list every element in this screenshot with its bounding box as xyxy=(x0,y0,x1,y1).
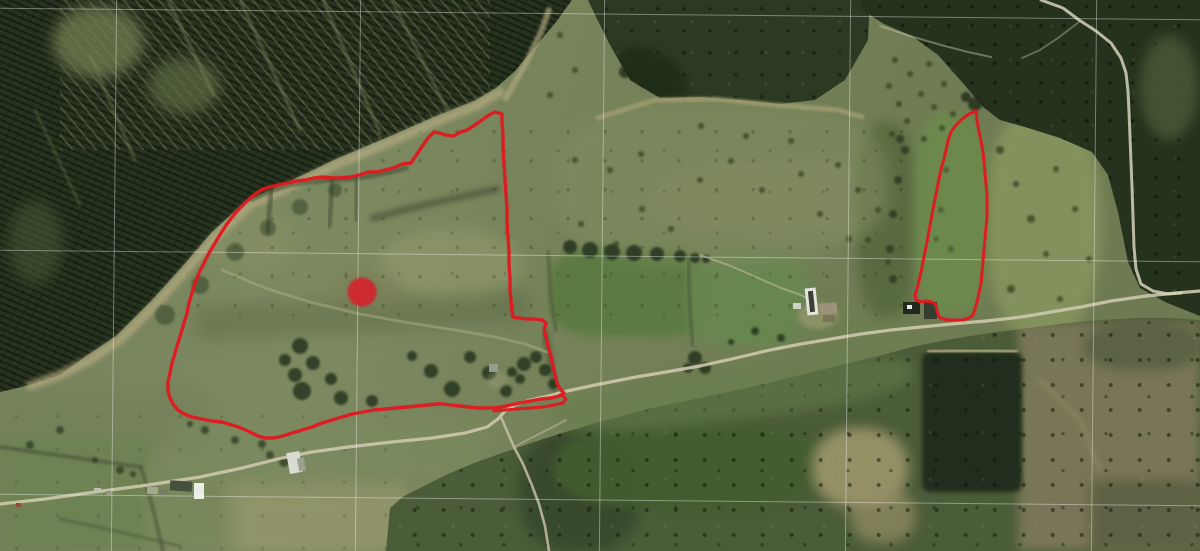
forest-dark-patch xyxy=(520,430,640,551)
moor-speckle-texture xyxy=(150,120,910,325)
sandy-clearing xyxy=(812,428,908,508)
east-parcel-pasture xyxy=(914,113,988,315)
aerial-map[interactable] xyxy=(0,0,1200,551)
scrub-dark-patch xyxy=(1090,480,1200,551)
field-speckle-texture xyxy=(0,400,400,551)
forest-clearing xyxy=(1140,35,1198,140)
plantation-block xyxy=(922,352,1022,492)
forest-clearing xyxy=(148,58,220,114)
scrub-dark-band xyxy=(1085,322,1200,370)
young-plantation xyxy=(555,424,827,510)
forest-clearing xyxy=(52,6,144,78)
forest-clearing xyxy=(8,200,63,285)
sandy-clearing xyxy=(850,488,916,544)
moor-southeast xyxy=(1018,322,1200,551)
